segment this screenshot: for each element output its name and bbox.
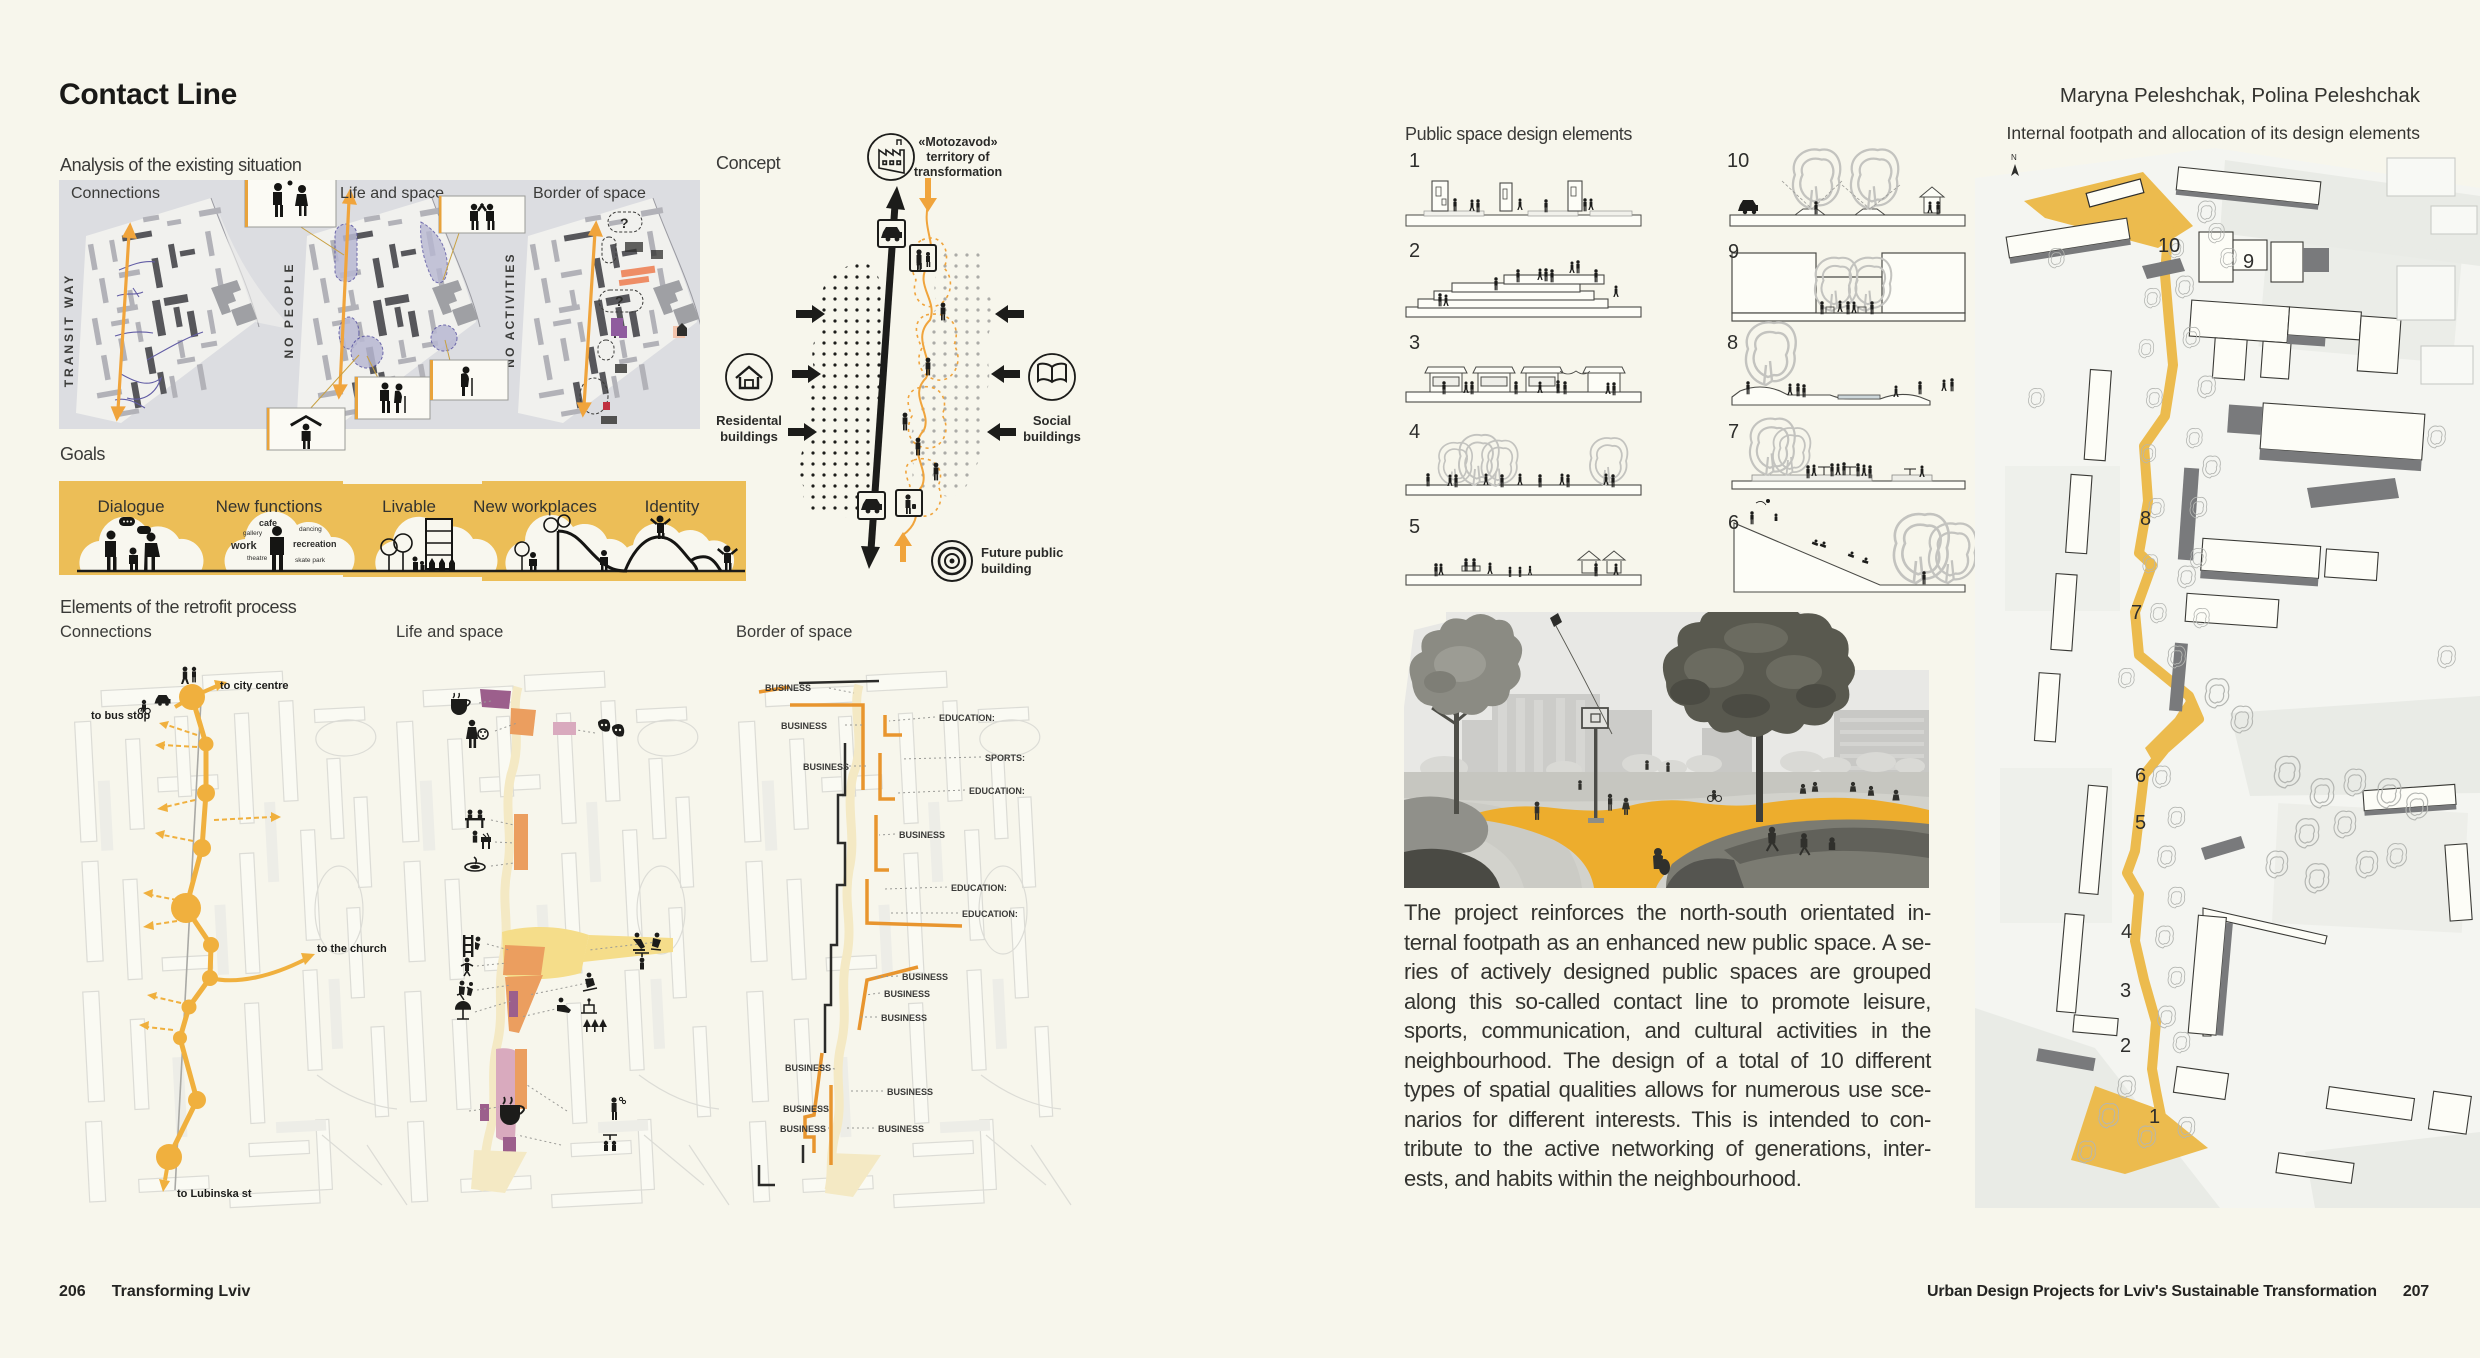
svg-text:Dialogue: Dialogue	[97, 497, 164, 516]
svg-text:dancing: dancing	[299, 526, 322, 533]
svg-text:BUSINESS: BUSINESS	[887, 1087, 933, 1097]
svg-text:3: 3	[2120, 980, 2131, 1002]
svg-text:Life and space: Life and space	[340, 185, 444, 202]
svg-text:skate park: skate park	[295, 557, 326, 564]
svg-text:Identity: Identity	[645, 497, 700, 516]
svg-text:BUSINESS: BUSINESS	[884, 989, 930, 999]
svg-text:buildings: buildings	[1023, 429, 1081, 444]
svg-text:2: 2	[2120, 1035, 2131, 1057]
svg-text:BUSINESS: BUSINESS	[878, 1124, 924, 1134]
svg-text:BUSINESS: BUSINESS	[780, 1124, 826, 1134]
svg-text:Social: Social	[1033, 413, 1071, 428]
svg-text:EDUCATION:: EDUCATION:	[939, 713, 995, 723]
svg-text:to the church: to the church	[317, 943, 387, 955]
svg-text:Residental: Residental	[716, 413, 782, 428]
svg-text:BUSINESS: BUSINESS	[899, 830, 945, 840]
svg-text:9: 9	[1728, 241, 1739, 263]
svg-text:EDUCATION:: EDUCATION:	[962, 909, 1018, 919]
svg-text:to city centre: to city centre	[220, 680, 288, 692]
svg-text:6: 6	[1728, 512, 1739, 534]
svg-text:4: 4	[1409, 421, 1420, 443]
svg-text:work: work	[230, 540, 258, 552]
svg-text:NO ACTIVITIES: NO ACTIVITIES	[503, 252, 517, 368]
svg-text:EDUCATION:: EDUCATION:	[951, 883, 1007, 893]
svg-text:BUSINESS: BUSINESS	[881, 1013, 927, 1023]
svg-text:recreation: recreation	[293, 539, 337, 549]
svg-text:territory of: territory of	[926, 150, 990, 164]
svg-text:BUSINESS: BUSINESS	[783, 1104, 829, 1114]
svg-text:NO PEOPLE: NO PEOPLE	[282, 261, 296, 358]
svg-text:5: 5	[2135, 812, 2146, 834]
svg-text:BUSINESS: BUSINESS	[765, 683, 811, 693]
svg-text:5: 5	[1409, 516, 1420, 538]
svg-text:SPORTS:: SPORTS:	[985, 753, 1025, 763]
svg-text:2: 2	[1409, 240, 1420, 262]
svg-text:to Lubinska st: to Lubinska st	[177, 1188, 252, 1200]
svg-text:EDUCATION:: EDUCATION:	[969, 786, 1025, 796]
svg-text:New functions: New functions	[216, 497, 323, 516]
svg-text:7: 7	[1728, 421, 1739, 443]
svg-text:New workplaces: New workplaces	[473, 497, 597, 516]
svg-text:1: 1	[1409, 150, 1420, 172]
svg-text:gallery: gallery	[243, 530, 263, 537]
svg-text:3: 3	[1409, 332, 1420, 354]
svg-text:BUSINESS: BUSINESS	[781, 721, 827, 731]
svg-text:Livable: Livable	[382, 497, 436, 516]
svg-text:buildings: buildings	[720, 429, 778, 444]
svg-text:N: N	[2011, 153, 2017, 162]
svg-text:BUSINESS: BUSINESS	[803, 762, 849, 772]
svg-text:6: 6	[2135, 765, 2146, 787]
svg-text:9: 9	[2243, 251, 2254, 273]
svg-text:8: 8	[2140, 508, 2151, 530]
svg-text:Connections: Connections	[71, 185, 160, 202]
svg-text:transformation: transformation	[914, 165, 1002, 179]
svg-text:TRANSIT WAY: TRANSIT WAY	[62, 273, 76, 388]
svg-text:10: 10	[1727, 150, 1749, 172]
svg-text:to bus stop: to bus stop	[91, 710, 151, 722]
svg-text:?: ?	[615, 293, 624, 309]
svg-text:7: 7	[2131, 602, 2142, 624]
svg-text:?: ?	[620, 215, 629, 231]
svg-text:BUSINESS: BUSINESS	[785, 1063, 831, 1073]
svg-text:theatre: theatre	[247, 555, 268, 562]
svg-text:8: 8	[1727, 332, 1738, 354]
svg-text:Border of space: Border of space	[533, 185, 646, 202]
svg-text:building: building	[981, 561, 1032, 576]
svg-text:10: 10	[2158, 235, 2180, 257]
svg-text:BUSINESS: BUSINESS	[902, 972, 948, 982]
svg-text:cafe: cafe	[259, 518, 277, 528]
svg-text:1: 1	[2149, 1106, 2160, 1128]
svg-text:Future public: Future public	[981, 545, 1063, 560]
svg-text:4: 4	[2121, 921, 2132, 943]
svg-text:«Motozavod»: «Motozavod»	[918, 135, 997, 149]
